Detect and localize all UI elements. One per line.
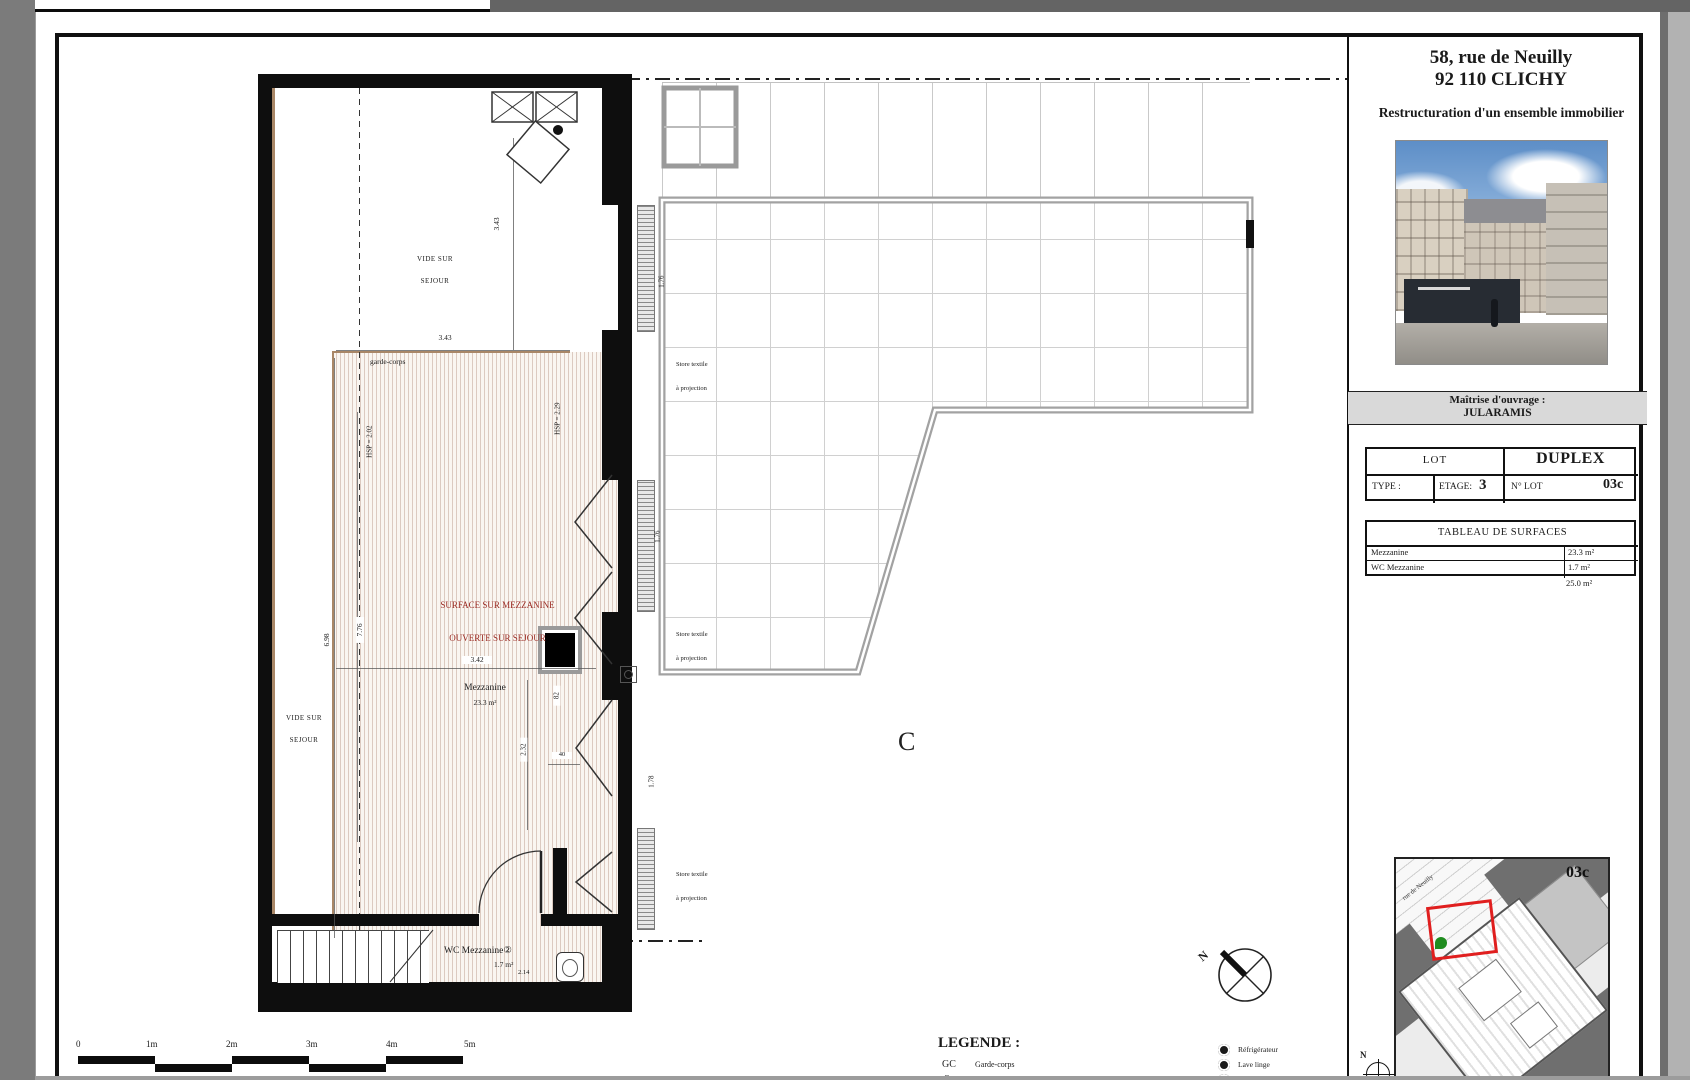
surfaces-row2-label: WC Mezzanine	[1371, 563, 1424, 572]
screen: VIDE SUR SEJOUR VIDE SUR SEJOUR garde-co…	[0, 0, 1690, 1080]
dim-698: 6.98	[323, 627, 331, 653]
label-vide-sejour-left: VIDE SUR SEJOUR	[276, 700, 332, 759]
locplan-lot-label: 03c	[1566, 865, 1589, 882]
terrace-fixture-circle	[624, 670, 633, 679]
lot-table-vline-2	[1433, 474, 1435, 503]
wall-right-inner-4	[602, 920, 618, 1012]
legend-fridge: Réfrigérateur	[1238, 1046, 1278, 1054]
surfaces-row1-label: Mezzanine	[1371, 548, 1408, 557]
photo-building-right	[1546, 183, 1608, 315]
building-photo	[1395, 140, 1608, 365]
wall-wc-stub	[553, 848, 567, 916]
label-store-mid: Store textile à projection	[676, 615, 708, 679]
surfaces-vline	[1564, 545, 1565, 578]
dim-343v: 3.43	[493, 209, 501, 239]
scale-bar: 0 1m 2m 3m 4m 5m	[66, 1040, 516, 1076]
scale-seg-2	[155, 1064, 232, 1072]
dim-176a: 1.76	[658, 270, 665, 294]
scale-seg-3	[232, 1056, 309, 1064]
location-plan: 03c rue de Neuilly	[1394, 857, 1610, 1076]
ownership-banner: Maîtrise d'ouvrage : JULARAMIS	[1348, 391, 1647, 425]
photo-building-center-roof	[1464, 199, 1548, 225]
label-wc: WC Mezzanine②	[444, 947, 512, 957]
label-surface-l2: OUVERTE SUR SEJOUR	[400, 633, 595, 644]
scale-tick-1: 1m	[146, 1040, 158, 1049]
wall-right-inner-3	[602, 612, 618, 700]
fridge-icon	[1218, 1044, 1230, 1056]
project-title-line1: 58, rue de Neuilly	[1366, 48, 1636, 68]
dim-342: 3.42	[462, 656, 492, 664]
roof-battens	[662, 82, 1250, 200]
void-dashed-line	[359, 88, 360, 982]
store-bottom-l1: Store textile	[676, 871, 708, 879]
legend-abbr-gc: GC	[942, 1060, 956, 1071]
wall-bottom	[258, 982, 632, 1012]
dim-line-342	[336, 668, 596, 669]
label-vide-top-l2: SEJOUR	[405, 278, 465, 285]
wc-fixture-bowl	[562, 959, 578, 977]
left-gutter	[0, 0, 35, 1080]
scale-seg-5	[386, 1056, 463, 1064]
label-wc-area: 1.7 m²	[494, 961, 513, 969]
dim-343h: 3.43	[430, 334, 460, 342]
store-top-l2: à projection	[676, 385, 708, 393]
label-letter-c: C	[898, 728, 915, 755]
browser-tab-remnant[interactable]	[35, 0, 490, 12]
dim-line-698	[334, 358, 335, 938]
label-mezzanine: Mezzanine	[455, 684, 515, 694]
sheet-page: VIDE SUR SEJOUR VIDE SUR SEJOUR garde-co…	[36, 12, 1660, 1076]
num-lot-label: N° LOT	[1511, 483, 1543, 493]
project-subtitle: Restructuration d'un ensemble immobilier	[1354, 106, 1649, 120]
label-vide-left-l1: VIDE SUR	[276, 715, 332, 722]
etage-value: 3	[1479, 478, 1487, 494]
staircase	[277, 930, 429, 983]
scale-tick-4: 4m	[386, 1040, 398, 1049]
wall-right-outer	[618, 74, 632, 1012]
dim-line-40	[548, 764, 580, 765]
legend-abbr-s: S	[944, 1075, 950, 1076]
panel-divider	[1347, 33, 1349, 1076]
ownership-name: JULARAMIS	[1348, 407, 1647, 419]
surfaces-row1-value: 23.3 m²	[1568, 548, 1594, 557]
desk-right	[1668, 12, 1690, 1076]
locplan-north-label: N	[1360, 1051, 1367, 1060]
dim-776: 7.76	[356, 617, 364, 643]
photo-storefront	[1404, 279, 1520, 323]
surfaces-total: 25.0 m²	[1566, 579, 1592, 588]
store-mid-l1: Store textile	[676, 631, 708, 639]
lot-label: LOT	[1367, 455, 1503, 467]
dim-232: 2.32	[520, 738, 527, 762]
wall-right-inner-1	[602, 74, 618, 205]
legend-appliances: Réfrigérateur Lave linge	[1216, 1042, 1346, 1076]
num-lot-value: 03c	[1603, 478, 1623, 493]
label-surface-mezzanine: SURFACE SUR MEZZANINE OUVERTE SUR SEJOUR	[400, 578, 595, 666]
wall-left	[258, 74, 272, 1012]
label-vide-left-l2: SEJOUR	[276, 737, 332, 744]
locplan-compass-h	[1363, 1074, 1395, 1076]
surfaces-table: TABLEAU DE SURFACES Mezzanine 23.3 m² WC…	[1365, 520, 1636, 576]
wall-right-inner-2	[602, 330, 618, 480]
type-label: TYPE :	[1372, 483, 1401, 493]
washer-icon	[1218, 1059, 1230, 1071]
store-mid-l2: à projection	[676, 655, 708, 663]
dim-82: 82	[553, 686, 560, 706]
surfaces-title: TABLEAU DE SURFACES	[1367, 527, 1638, 538]
store-strip-bottom	[637, 828, 655, 930]
scale-seg-1	[78, 1056, 155, 1064]
store-top-l1: Store textile	[676, 361, 708, 369]
store-strip-top	[637, 205, 655, 332]
lot-table: LOT DUPLEX TYPE : ETAGE: 3 N° LOT 03c	[1365, 447, 1636, 501]
store-strip-mid	[637, 480, 655, 612]
label-store-top: Store textile à projection	[676, 345, 708, 409]
surfaces-hline-2	[1367, 560, 1638, 561]
scale-tick-0: 0	[76, 1040, 81, 1049]
lot-value: DUPLEX	[1505, 451, 1636, 468]
label-vide-sejour-top: VIDE SUR SEJOUR	[405, 241, 465, 300]
etage-label: ETAGE:	[1439, 483, 1472, 493]
project-title-line2: 92 110 CLICHY	[1366, 70, 1636, 90]
dim-176b: 1.76	[654, 525, 661, 549]
wc-fixture	[556, 952, 584, 982]
surfaces-row2-value: 1.7 m²	[1568, 563, 1590, 572]
terrace-fixture	[620, 666, 637, 683]
scale-tick-2: 2m	[226, 1040, 238, 1049]
locplan-entry-dot	[1435, 937, 1447, 949]
label-hsp-left: HSP = 2.02	[366, 412, 373, 472]
wall-wc-left	[271, 914, 479, 926]
rail-top	[332, 351, 570, 353]
locplan-unit-outline	[1426, 899, 1498, 961]
page-shadow	[1660, 12, 1668, 1076]
dim-178: 1.78	[648, 770, 655, 794]
label-store-bottom: Store textile à projection	[676, 855, 708, 919]
label-vide-top-l1: VIDE SUR	[405, 256, 465, 263]
legend-label-gc: Garde-corps	[975, 1061, 1015, 1069]
dim-line-343h	[336, 350, 570, 351]
label-garde-corps: garde-corps	[370, 358, 405, 366]
store-bottom-l2: à projection	[676, 895, 708, 903]
wall-top	[258, 74, 632, 88]
rail-wall-inner	[272, 88, 275, 914]
scale-seg-4	[309, 1064, 386, 1072]
scale-tick-3: 3m	[306, 1040, 318, 1049]
label-wc-dim: 2.14	[518, 970, 529, 977]
label-hsp-right: HSP = 2.29	[554, 389, 561, 449]
appliance-icon-clipped	[1218, 1074, 1230, 1076]
label-surface-l1: SURFACE SUR MEZZANINE	[400, 600, 595, 611]
photo-person	[1491, 299, 1498, 327]
scale-tick-5: 5m	[464, 1040, 476, 1049]
legend-title: LEGENDE :	[938, 1036, 1020, 1052]
ownership-label: Maîtrise d'ouvrage :	[1348, 395, 1647, 407]
photo-storefront-sign	[1418, 287, 1470, 290]
dim-line-343v	[513, 138, 514, 350]
label-mezzanine-area: 23.3 m²	[455, 699, 515, 707]
legend-washer: Lave linge	[1238, 1061, 1270, 1069]
dim-40: 40	[552, 752, 572, 759]
photo-street	[1396, 323, 1608, 365]
